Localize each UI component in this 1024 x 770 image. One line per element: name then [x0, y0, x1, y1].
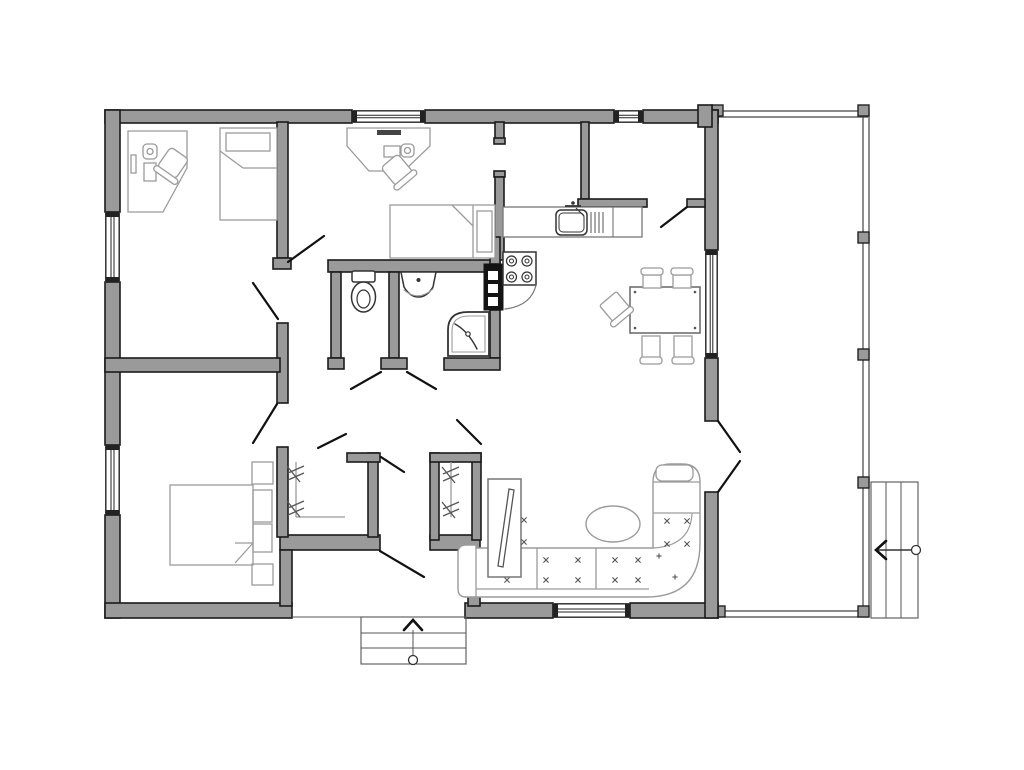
window-west-bedroom1-cap [107, 277, 119, 282]
wall-utility-left [581, 122, 589, 199]
wall-north-2 [425, 110, 614, 123]
bathroom-sink [417, 278, 421, 282]
wall-bed2-east-cap2 [494, 171, 505, 177]
wall-bath-bottom [444, 358, 500, 370]
bedroom1-bed [220, 128, 277, 220]
wall-closet-b-top [430, 453, 481, 462]
shower [466, 332, 470, 336]
porch-steps [912, 546, 921, 555]
master-bed [170, 485, 253, 565]
dining-chair-top-1 [641, 268, 663, 288]
floor-plan-canvas [0, 0, 1024, 770]
chimney-flue-opening [488, 297, 498, 306]
dining-chair-top-1 [643, 275, 661, 288]
wall-bath-right-lower [490, 310, 500, 358]
window-north-bedroom2-gap [352, 110, 425, 123]
wall-closet-a-right [368, 453, 378, 537]
window-west-master-gap [105, 445, 120, 515]
wall-closet-a-top [347, 453, 380, 462]
window-north-kitchen-cap [638, 112, 643, 122]
wall-wc-bath-divider-cap [381, 358, 407, 369]
dining-table [630, 287, 700, 333]
window-east-dining-cap [707, 250, 717, 255]
dining-table [634, 327, 637, 330]
window-south-living-cap [625, 605, 630, 617]
window-west-bedroom1-cap [107, 212, 119, 217]
window-south-living-gap [553, 603, 630, 618]
porch-post [858, 606, 869, 617]
dining-chair-top-2 [671, 268, 693, 275]
kitchen-sink [571, 201, 575, 205]
tv-cabinet [488, 479, 527, 577]
window-west-bedroom1 [105, 212, 120, 282]
toilet [352, 271, 375, 282]
dining-chair-top-1 [641, 268, 663, 275]
floor-plan [0, 0, 1024, 770]
window-north-kitchen-cap [614, 112, 619, 122]
dining-table [694, 327, 697, 330]
wall-wc-bath-divider [389, 272, 399, 358]
dining-chair-bottom-1 [642, 336, 660, 358]
bedroom2-desk [377, 130, 401, 135]
toilet [352, 271, 376, 312]
wall-closet-b-right [472, 453, 481, 540]
wall-wc-left-cap [328, 358, 344, 369]
wall-bed1-bed2 [277, 122, 288, 258]
dining-chair-bottom-1 [640, 336, 662, 364]
entry-recess-top-left [280, 535, 380, 550]
wall-ne-post [698, 105, 712, 127]
dining-chair-top-2 [671, 268, 693, 288]
window-west-master-cap [107, 445, 119, 450]
dining-chair-top-2 [673, 275, 691, 288]
dining-chair-bottom-2 [672, 336, 694, 364]
wall-bed1-bed2-cap [273, 258, 291, 269]
window-north-bedroom2 [352, 110, 425, 123]
entry-steps [409, 656, 418, 665]
wall-west-1 [105, 110, 120, 212]
wall-bed2-east-cap1 [494, 138, 505, 144]
window-east-dining-cap [707, 353, 717, 358]
wall-bed1-master [105, 358, 280, 372]
dining-table [630, 287, 700, 333]
bedroom1-bed [220, 128, 277, 220]
window-west-master [105, 445, 120, 515]
window-north-kitchen [614, 110, 643, 123]
coffee-table [586, 506, 640, 542]
dining-table [694, 291, 697, 294]
porch-post [858, 477, 869, 488]
wall-east-3 [705, 492, 718, 618]
window-south-living [553, 603, 630, 618]
wall-north-1 [105, 110, 352, 123]
window-east-dining [705, 250, 718, 358]
wall-closet-b-left [430, 453, 439, 540]
window-west-master-cap [107, 510, 119, 515]
wall-east-1 [705, 110, 718, 250]
tv-cabinet [488, 479, 521, 577]
dining-table [634, 291, 637, 294]
chimney-flue-opening [488, 271, 498, 280]
dining-chair-bottom-2 [674, 336, 692, 358]
bedroom2-bed [390, 205, 495, 258]
wall-bath-top [328, 260, 500, 272]
wall-wc-left [331, 272, 341, 358]
window-east-dining-gap [705, 250, 718, 358]
wall-master-east [277, 447, 288, 537]
bedroom2-bed [390, 205, 495, 258]
porch-post [858, 349, 869, 360]
porch-post [858, 105, 869, 116]
dining-chair-bottom-1 [640, 357, 662, 364]
sofa [656, 465, 693, 481]
window-north-bedroom2-cap [420, 112, 425, 122]
floor-plan-svg [0, 0, 1024, 770]
porch-post [858, 232, 869, 243]
chimney-flue-opening [488, 284, 498, 293]
window-south-living-cap [553, 605, 558, 617]
shower [448, 312, 489, 356]
wall-utility-bottom [578, 199, 647, 207]
wall-utility-bottom-stub [687, 199, 705, 207]
wall-south-1 [105, 603, 292, 618]
entry-recess-left [280, 550, 292, 606]
wall-east-2 [705, 358, 718, 421]
dining-chair-bottom-2 [672, 357, 694, 364]
window-north-bedroom2-cap [352, 112, 357, 122]
window-west-bedroom1-gap [105, 212, 120, 282]
coffee-table [586, 506, 640, 542]
